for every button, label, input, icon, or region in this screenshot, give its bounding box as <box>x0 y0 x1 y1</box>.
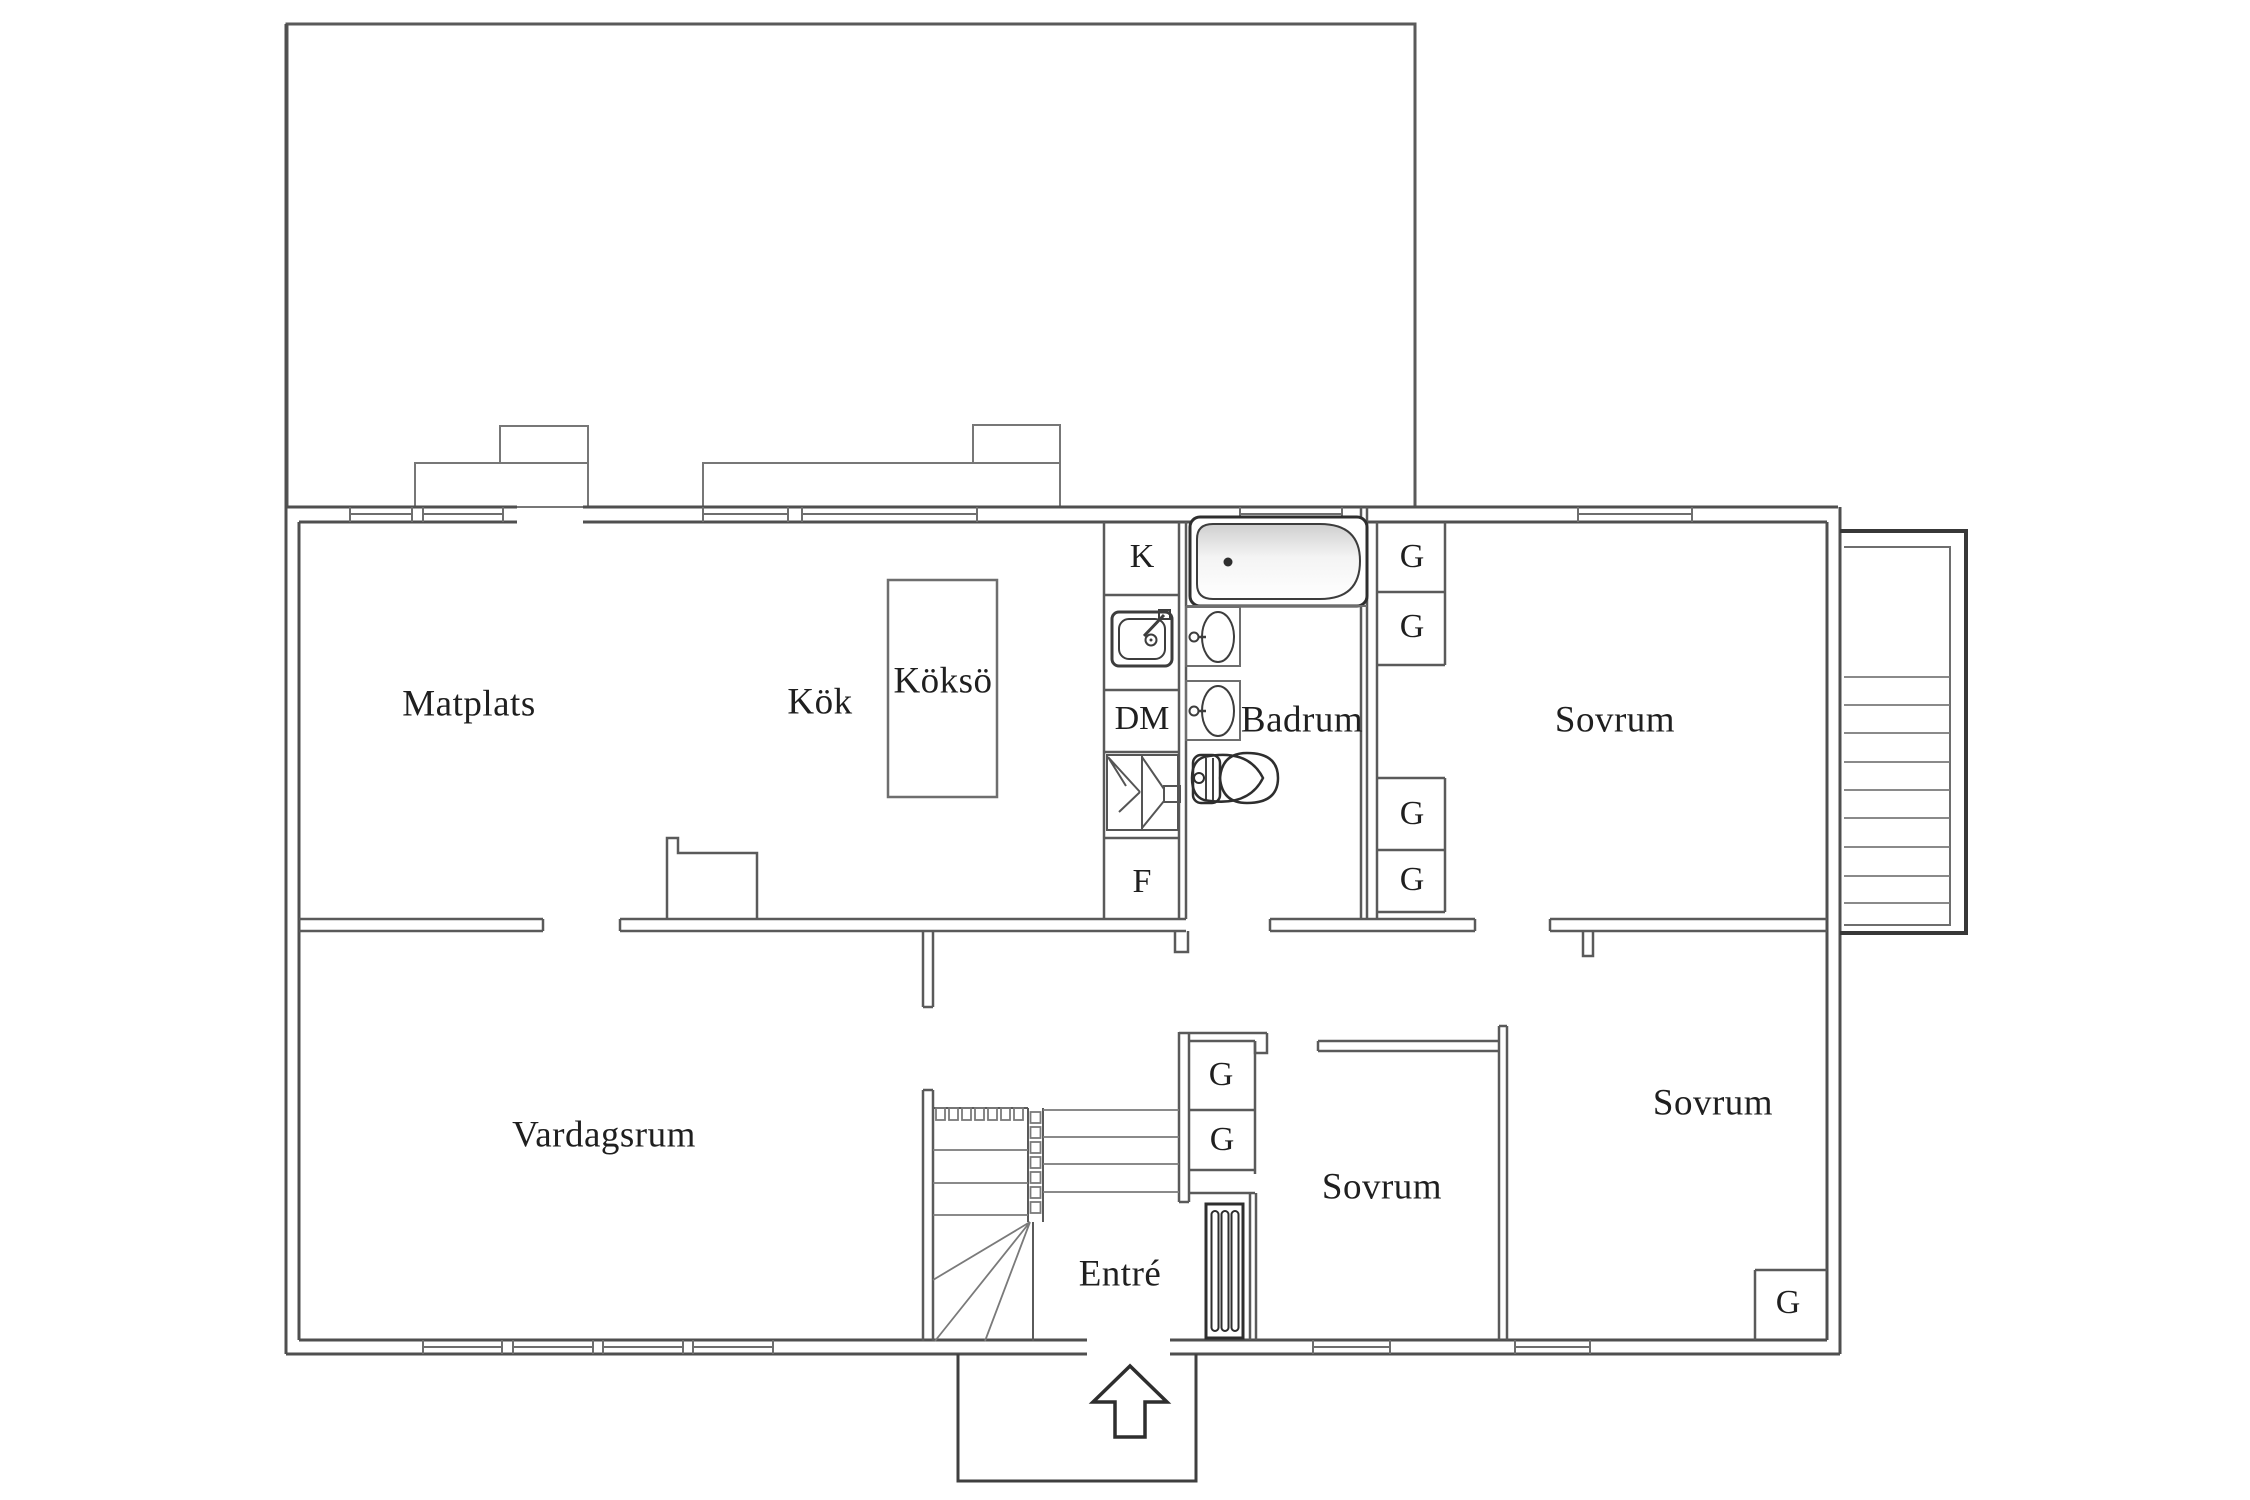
fridge-marker: K <box>1130 538 1155 576</box>
floor-plan: Matplats Kök Vardagsrum Badrum Sovrum So… <box>0 0 2250 1500</box>
kitchen-sink-icon <box>1112 610 1172 666</box>
room-label-sovrum-upper: Sovrum <box>1555 699 1675 742</box>
porch <box>958 1354 1196 1481</box>
toilet-icon <box>1192 753 1278 803</box>
upper-room-counters <box>415 425 1060 507</box>
bathtub-icon <box>1186 517 1367 606</box>
room-label-badrum: Badrum <box>1241 699 1363 742</box>
room-label-sovrum-middle: Sovrum <box>1322 1166 1442 1209</box>
staircase-exterior <box>1840 531 1966 933</box>
staircase-main <box>933 1108 1179 1341</box>
radiator-icon <box>1206 1204 1243 1338</box>
cabinet-carousel-icon <box>1107 755 1180 830</box>
wardrobe-marker-1: G <box>1400 538 1425 576</box>
wardrobe-marker-7: G <box>1776 1284 1801 1322</box>
entrance-arrow-icon <box>1093 1366 1167 1437</box>
room-label-vardagsrum: Vardagsrum <box>512 1114 696 1157</box>
wardrobe-marker-3: G <box>1400 795 1425 833</box>
wardrobe-marker-2: G <box>1400 608 1425 646</box>
interior-walls <box>299 507 1827 1341</box>
island-label-kokso: Köksö <box>893 660 992 703</box>
room-label-sovrum-right: Sovrum <box>1653 1082 1773 1125</box>
washbasin-icon <box>1186 681 1240 740</box>
room-label-entre: Entré <box>1079 1253 1162 1296</box>
room-label-matplats: Matplats <box>402 683 535 726</box>
upper-room-outline <box>287 24 1415 507</box>
wardrobe-marker-4: G <box>1400 861 1425 899</box>
room-label-kok: Kök <box>787 681 852 724</box>
freezer-marker: F <box>1133 863 1152 901</box>
dishwasher-marker: DM <box>1115 700 1170 738</box>
wardrobe-marker-5: G <box>1209 1056 1234 1094</box>
wardrobe-marker-6: G <box>1210 1121 1235 1159</box>
washbasin-icon <box>1186 607 1240 666</box>
